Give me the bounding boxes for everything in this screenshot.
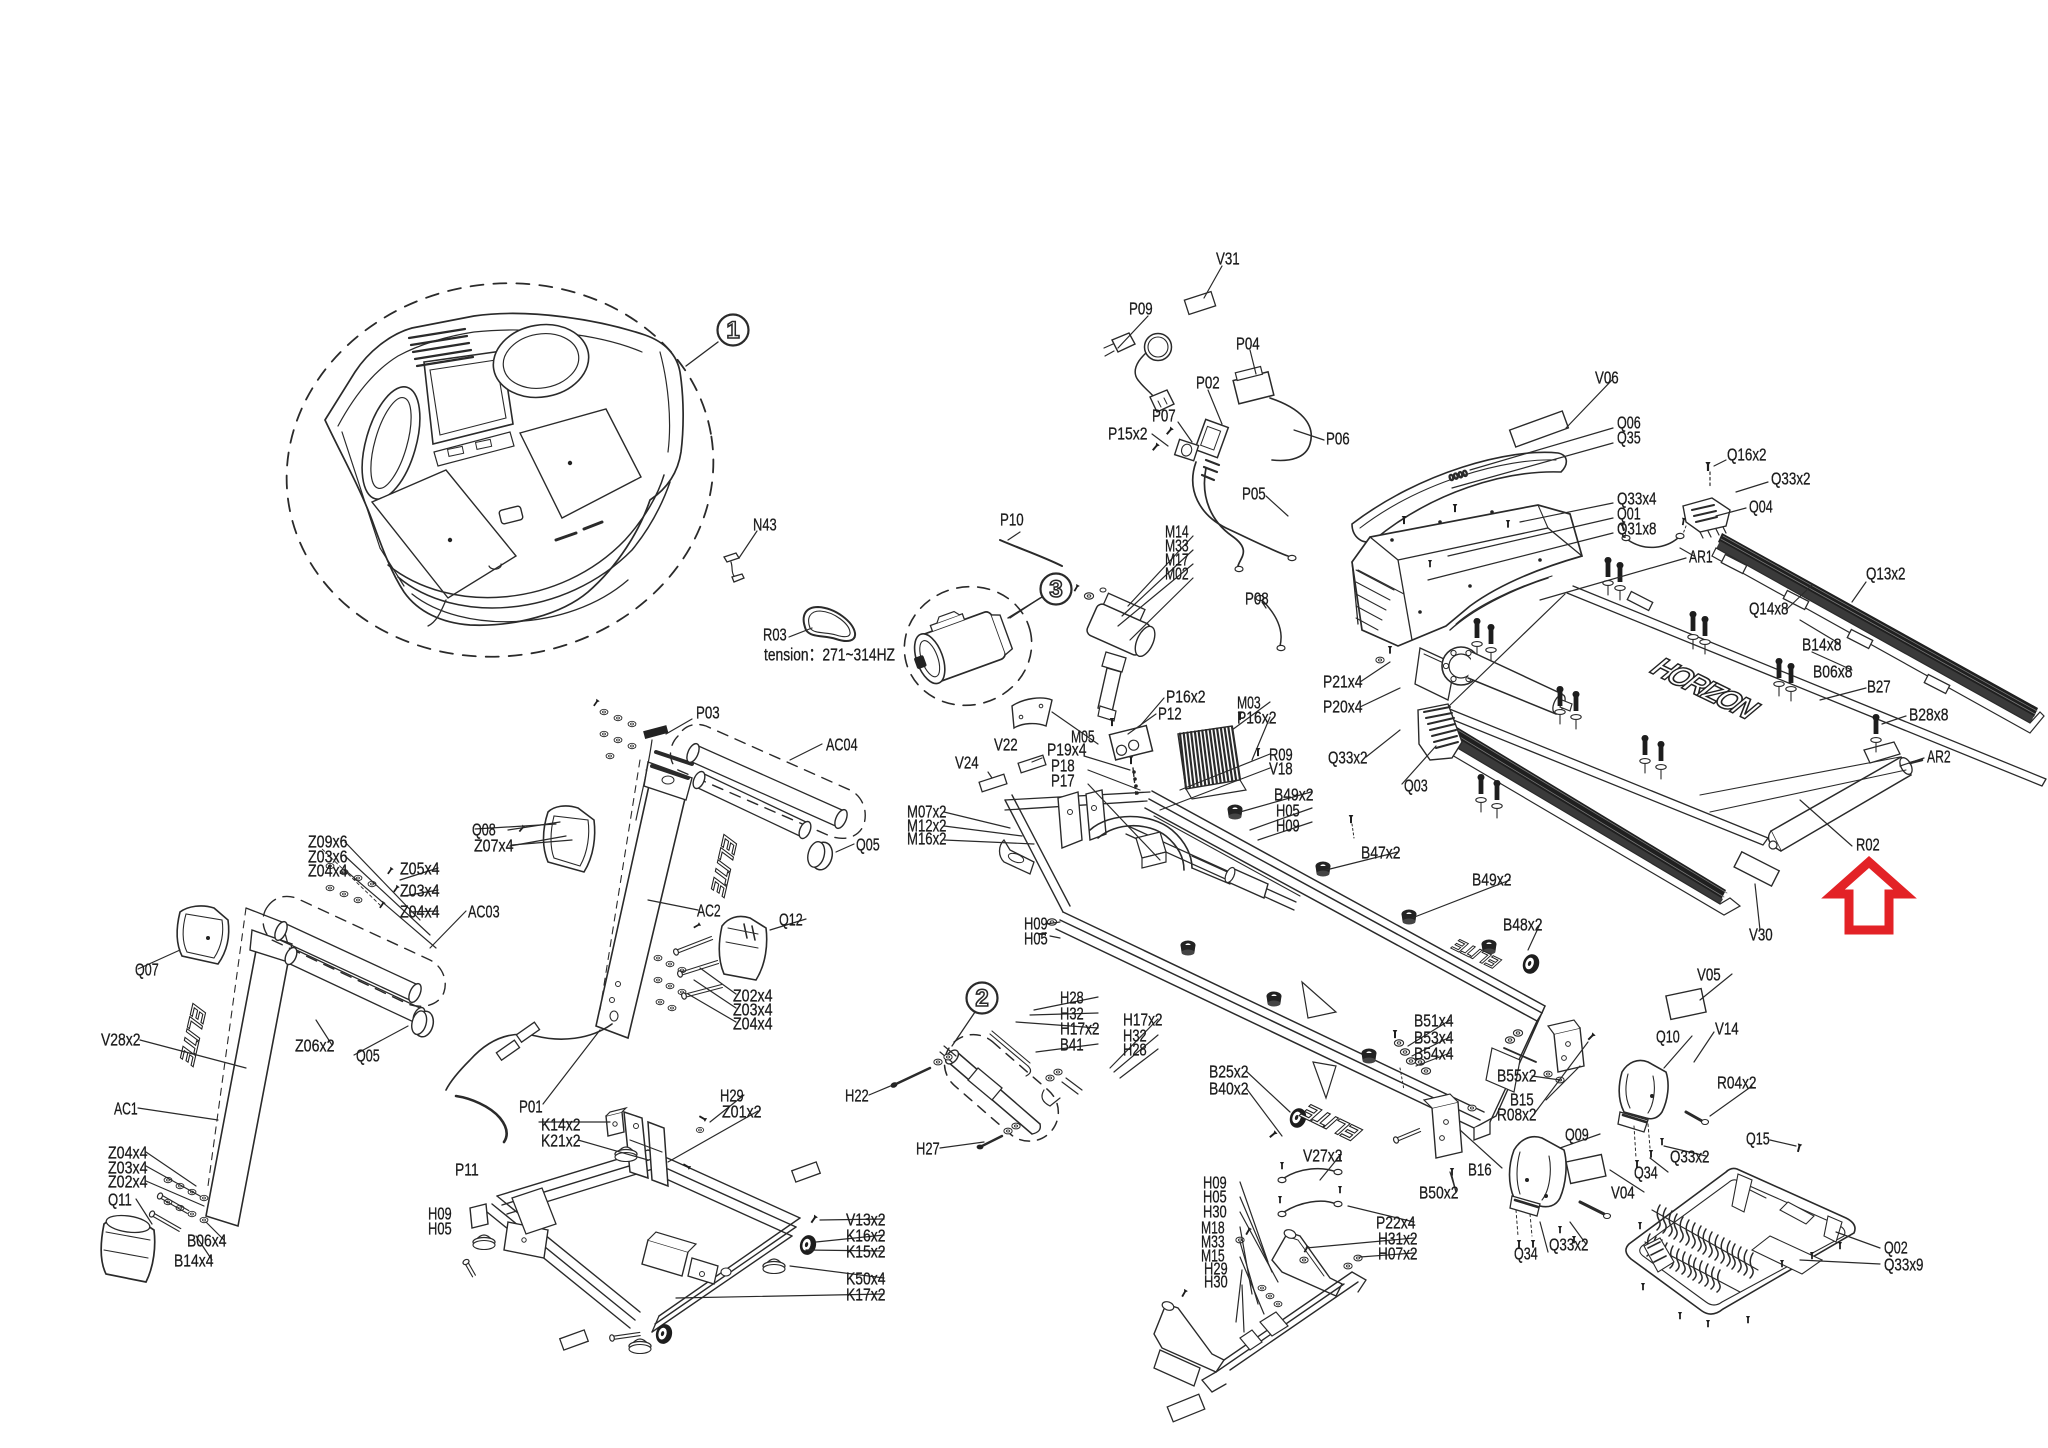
svg-text:K17x2: K17x2 — [846, 1285, 886, 1305]
svg-text:V31: V31 — [1216, 249, 1240, 269]
svg-text:P04: P04 — [1236, 334, 1260, 354]
svg-text:AC04: AC04 — [826, 735, 858, 755]
svg-text:Q04: Q04 — [1749, 497, 1773, 517]
svg-text:B16: B16 — [1468, 1160, 1492, 1180]
svg-text:Q05: Q05 — [356, 1046, 380, 1066]
svg-text:B55x2: B55x2 — [1497, 1066, 1537, 1086]
svg-text:V04: V04 — [1611, 1183, 1635, 1203]
svg-text:K15x2: K15x2 — [846, 1242, 886, 1262]
svg-text:B14x8: B14x8 — [1802, 635, 1842, 655]
svg-text:B40x2: B40x2 — [1209, 1079, 1249, 1099]
svg-text:H07x2: H07x2 — [1378, 1244, 1418, 1264]
svg-text:Q14x8: Q14x8 — [1749, 599, 1789, 619]
svg-text:Q33x2: Q33x2 — [1549, 1235, 1589, 1255]
svg-text:Z05x4: Z05x4 — [400, 859, 440, 879]
svg-text:R08x2: R08x2 — [1497, 1105, 1537, 1125]
svg-text:B06x4: B06x4 — [187, 1231, 227, 1251]
svg-text:V30: V30 — [1749, 925, 1773, 945]
svg-text:Q05: Q05 — [856, 835, 880, 855]
svg-text:P12: P12 — [1158, 704, 1182, 724]
svg-text:H30: H30 — [1204, 1272, 1228, 1292]
svg-text:1: 1 — [726, 317, 739, 344]
svg-text:H05: H05 — [1024, 929, 1048, 949]
svg-text:R04x2: R04x2 — [1717, 1073, 1757, 1093]
svg-text:Q12: Q12 — [779, 910, 803, 930]
svg-text:Q33x2: Q33x2 — [1771, 469, 1811, 489]
svg-text:B06x8: B06x8 — [1813, 662, 1853, 682]
svg-text:Q16x2: Q16x2 — [1727, 445, 1767, 465]
svg-text:P03: P03 — [696, 703, 720, 723]
svg-text:B14x4: B14x4 — [174, 1251, 214, 1271]
svg-text:AR1: AR1 — [1689, 547, 1713, 567]
svg-text:Q15: Q15 — [1746, 1129, 1770, 1149]
svg-text:V18: V18 — [1269, 759, 1293, 779]
svg-text:Z02x4: Z02x4 — [108, 1172, 148, 1192]
svg-text:R03: R03 — [763, 625, 787, 645]
svg-text:Z03x4: Z03x4 — [400, 881, 440, 901]
svg-text:B27: B27 — [1867, 677, 1891, 697]
svg-text:H28: H28 — [1123, 1040, 1147, 1060]
svg-text:B54x4: B54x4 — [1414, 1044, 1454, 1064]
svg-text:Q34: Q34 — [1514, 1244, 1538, 1264]
svg-text:B47x2: B47x2 — [1361, 843, 1401, 863]
svg-text:AC03: AC03 — [468, 902, 500, 922]
svg-text:B28x8: B28x8 — [1909, 705, 1949, 725]
svg-text:Q33x2: Q33x2 — [1670, 1147, 1710, 1167]
svg-text:P21x4: P21x4 — [1323, 672, 1363, 692]
svg-text:Q33x9: Q33x9 — [1884, 1255, 1924, 1275]
svg-text:V22: V22 — [994, 735, 1018, 755]
svg-text:P16x2: P16x2 — [1237, 708, 1277, 728]
svg-text:tension：271~314HZ: tension：271~314HZ — [764, 645, 895, 665]
svg-text:P11: P11 — [455, 1160, 479, 1180]
svg-text:Q10: Q10 — [1656, 1027, 1680, 1047]
svg-text:Z01x2: Z01x2 — [722, 1102, 762, 1122]
svg-text:Q35: Q35 — [1617, 428, 1641, 448]
svg-text:V27x2: V27x2 — [1303, 1146, 1343, 1166]
svg-text:3: 3 — [1049, 576, 1062, 603]
svg-text:V24: V24 — [955, 753, 979, 773]
svg-text:H22: H22 — [845, 1086, 869, 1106]
svg-text:Q09: Q09 — [1565, 1125, 1589, 1145]
svg-text:AC2: AC2 — [697, 901, 721, 921]
svg-text:Q11: Q11 — [108, 1190, 132, 1210]
svg-text:P07: P07 — [1152, 406, 1176, 426]
svg-text:K21x2: K21x2 — [541, 1131, 581, 1151]
svg-text:Q34: Q34 — [1634, 1163, 1658, 1183]
svg-text:R02: R02 — [1856, 835, 1880, 855]
svg-text:P10: P10 — [1000, 510, 1024, 530]
svg-text:P09: P09 — [1129, 299, 1153, 319]
svg-text:H27: H27 — [916, 1139, 940, 1159]
svg-text:P05: P05 — [1242, 484, 1266, 504]
svg-text:H05: H05 — [428, 1219, 452, 1239]
svg-text:B50x2: B50x2 — [1419, 1183, 1459, 1203]
svg-text:Q31x8: Q31x8 — [1617, 519, 1657, 539]
svg-text:M02: M02 — [1165, 564, 1189, 584]
svg-text:V06: V06 — [1595, 368, 1619, 388]
svg-text:AC1: AC1 — [114, 1099, 138, 1119]
svg-text:Q07: Q07 — [135, 960, 159, 980]
svg-text:V14: V14 — [1715, 1019, 1739, 1039]
svg-text:B49x2: B49x2 — [1472, 870, 1512, 890]
svg-text:Q13x2: Q13x2 — [1866, 564, 1906, 584]
svg-text:Z04x4: Z04x4 — [308, 861, 348, 881]
svg-text:V28x2: V28x2 — [101, 1030, 141, 1050]
svg-text:H09: H09 — [1276, 816, 1300, 836]
svg-text:Z04x4: Z04x4 — [400, 902, 440, 922]
svg-text:P17: P17 — [1051, 771, 1075, 791]
svg-text:V05: V05 — [1697, 965, 1721, 985]
svg-text:P01: P01 — [519, 1097, 543, 1117]
svg-text:Z06x2: Z06x2 — [295, 1036, 335, 1056]
svg-text:P20x4: P20x4 — [1323, 697, 1363, 717]
svg-text:Z04x4: Z04x4 — [733, 1014, 773, 1034]
svg-text:P06: P06 — [1326, 429, 1350, 449]
svg-text:P15x2: P15x2 — [1108, 424, 1148, 444]
svg-text:P02: P02 — [1196, 373, 1220, 393]
svg-text:AR2: AR2 — [1927, 747, 1951, 767]
svg-text:N43: N43 — [753, 515, 777, 535]
svg-text:Z07x4: Z07x4 — [474, 836, 514, 856]
svg-text:2: 2 — [975, 985, 988, 1012]
svg-text:M16x2: M16x2 — [907, 829, 947, 849]
svg-text:P08: P08 — [1245, 589, 1269, 609]
svg-text:Q33x2: Q33x2 — [1328, 748, 1368, 768]
svg-text:B48x2: B48x2 — [1503, 915, 1543, 935]
svg-text:B41: B41 — [1060, 1035, 1084, 1055]
svg-text:Q03: Q03 — [1404, 776, 1428, 796]
